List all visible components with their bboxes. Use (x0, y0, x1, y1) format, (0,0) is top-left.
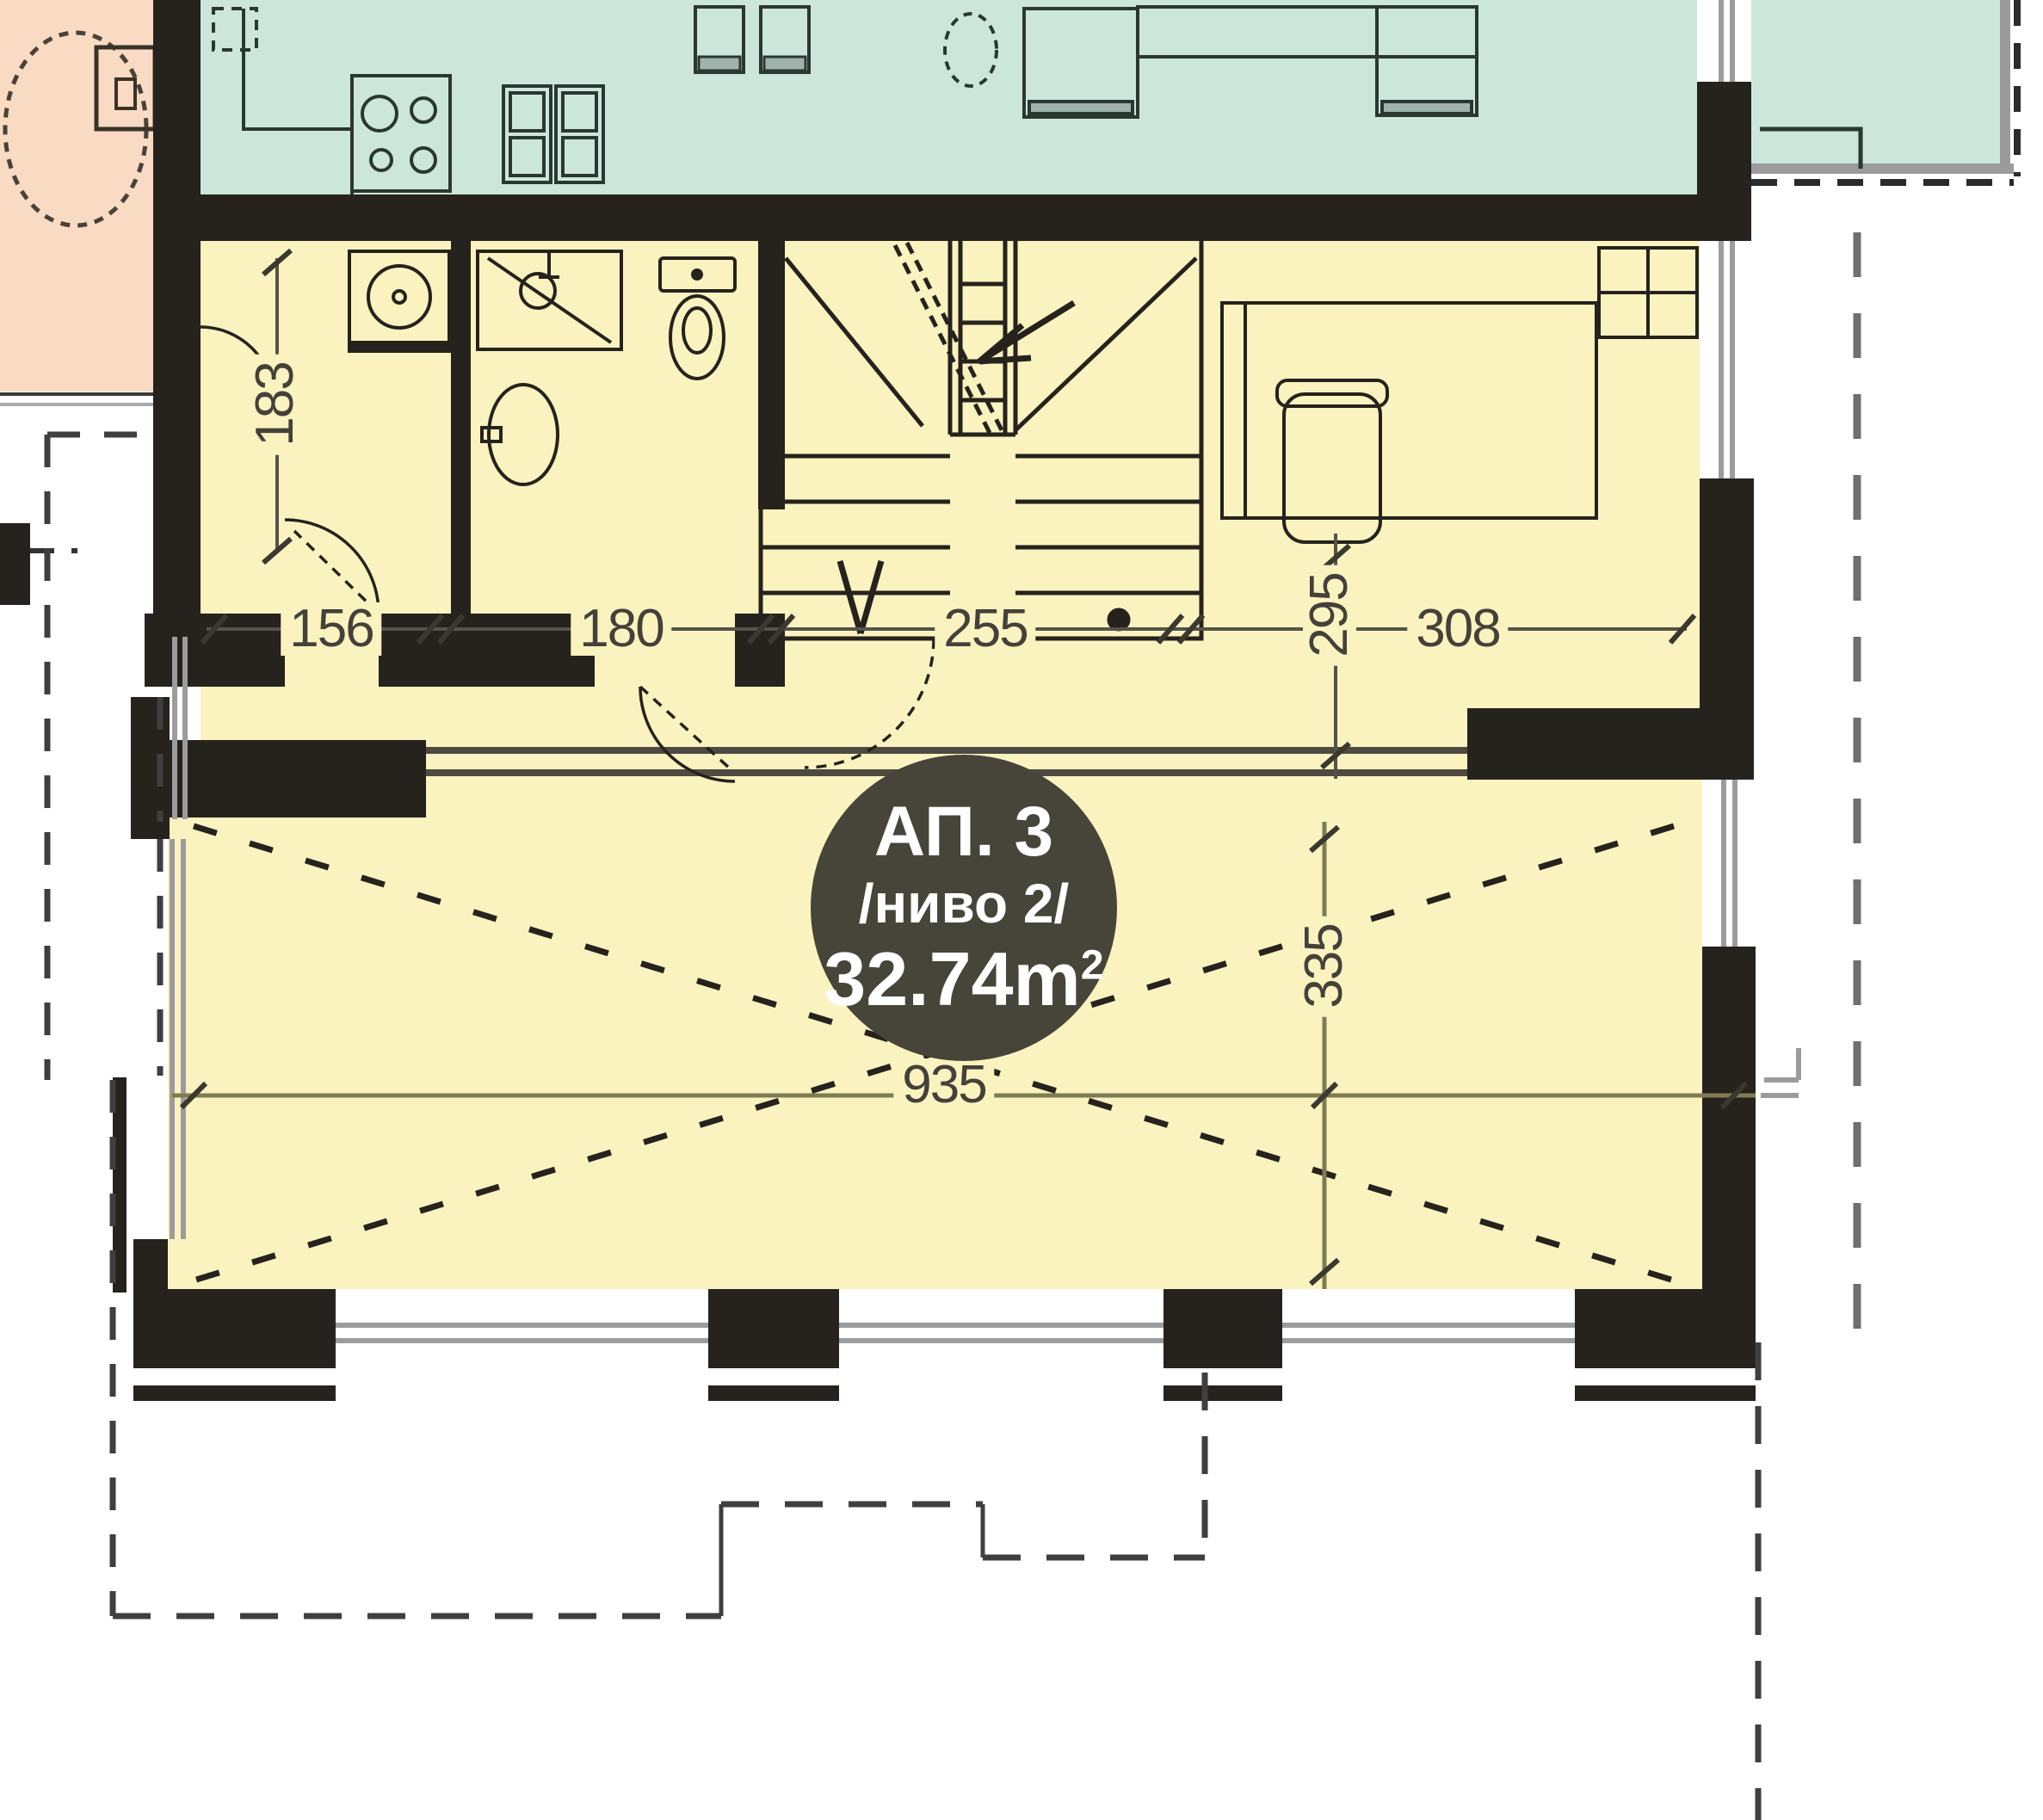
wall-top (153, 194, 1751, 241)
pier-bottom-1 (133, 1289, 336, 1368)
wall-window-pier-right (1467, 708, 1700, 780)
unit-area: 32.74m2 (824, 938, 1103, 1021)
wall-right-pier-top (1697, 82, 1751, 241)
wall-laundry-bath (451, 241, 471, 614)
unit-badge: АП. 3 /ниво 2/ 32.74m2 (811, 755, 1117, 1061)
neighbor-balcony (1751, 0, 2009, 169)
wall-right-mid (1700, 478, 1754, 780)
wall-right-bottom (1702, 947, 1756, 1368)
dim-desk-room-width: 308 (1407, 602, 1508, 656)
dim-hall-width: 156 (281, 602, 381, 656)
floor-plan: 183 156 180 255 295 308 335 935 АП. 3 /н… (0, 0, 2043, 1820)
unit-level: /ниво 2/ (859, 869, 1070, 938)
dim-living-depth: 335 (1298, 916, 1351, 1016)
dim-stairs-width: 255 (935, 602, 1035, 656)
dim-bath-width: 180 (571, 602, 671, 656)
dim-room-depth: 295 (1303, 565, 1356, 665)
terrace-gray-marks (1761, 1048, 1799, 1095)
pier-bottom-3 (1163, 1289, 1282, 1368)
dim-living-width: 935 (893, 1058, 994, 1112)
wall-left (153, 0, 201, 637)
stair-start-dot (1109, 610, 1128, 629)
pier-bottom-2 (708, 1289, 839, 1368)
unit-number: АП. 3 (874, 795, 1053, 869)
dim-laundry-height: 183 (249, 354, 302, 454)
